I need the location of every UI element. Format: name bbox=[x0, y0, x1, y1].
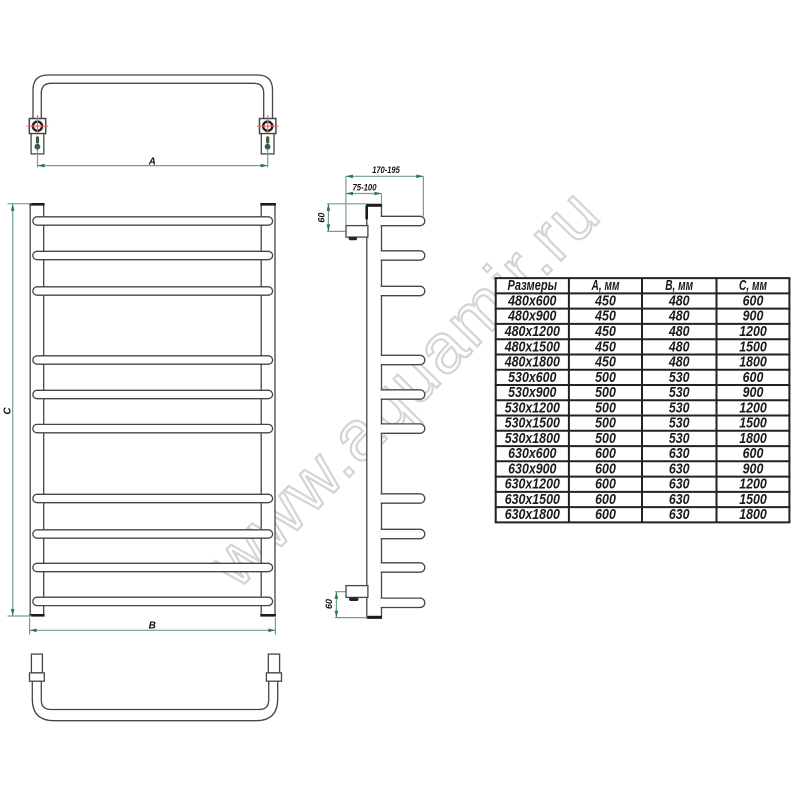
svg-text:B: B bbox=[149, 620, 156, 631]
svg-text:C: C bbox=[2, 407, 13, 415]
svg-text:600: 600 bbox=[595, 506, 616, 523]
svg-text:60: 60 bbox=[324, 599, 334, 609]
svg-text:1800: 1800 bbox=[739, 506, 767, 523]
svg-text:75-100: 75-100 bbox=[353, 182, 377, 192]
svg-text:630x1800: 630x1800 bbox=[505, 506, 561, 523]
svg-text:630: 630 bbox=[669, 506, 690, 523]
svg-text:A: A bbox=[148, 156, 156, 167]
svg-text:170-195: 170-195 bbox=[372, 165, 400, 175]
svg-text:60: 60 bbox=[317, 213, 327, 223]
